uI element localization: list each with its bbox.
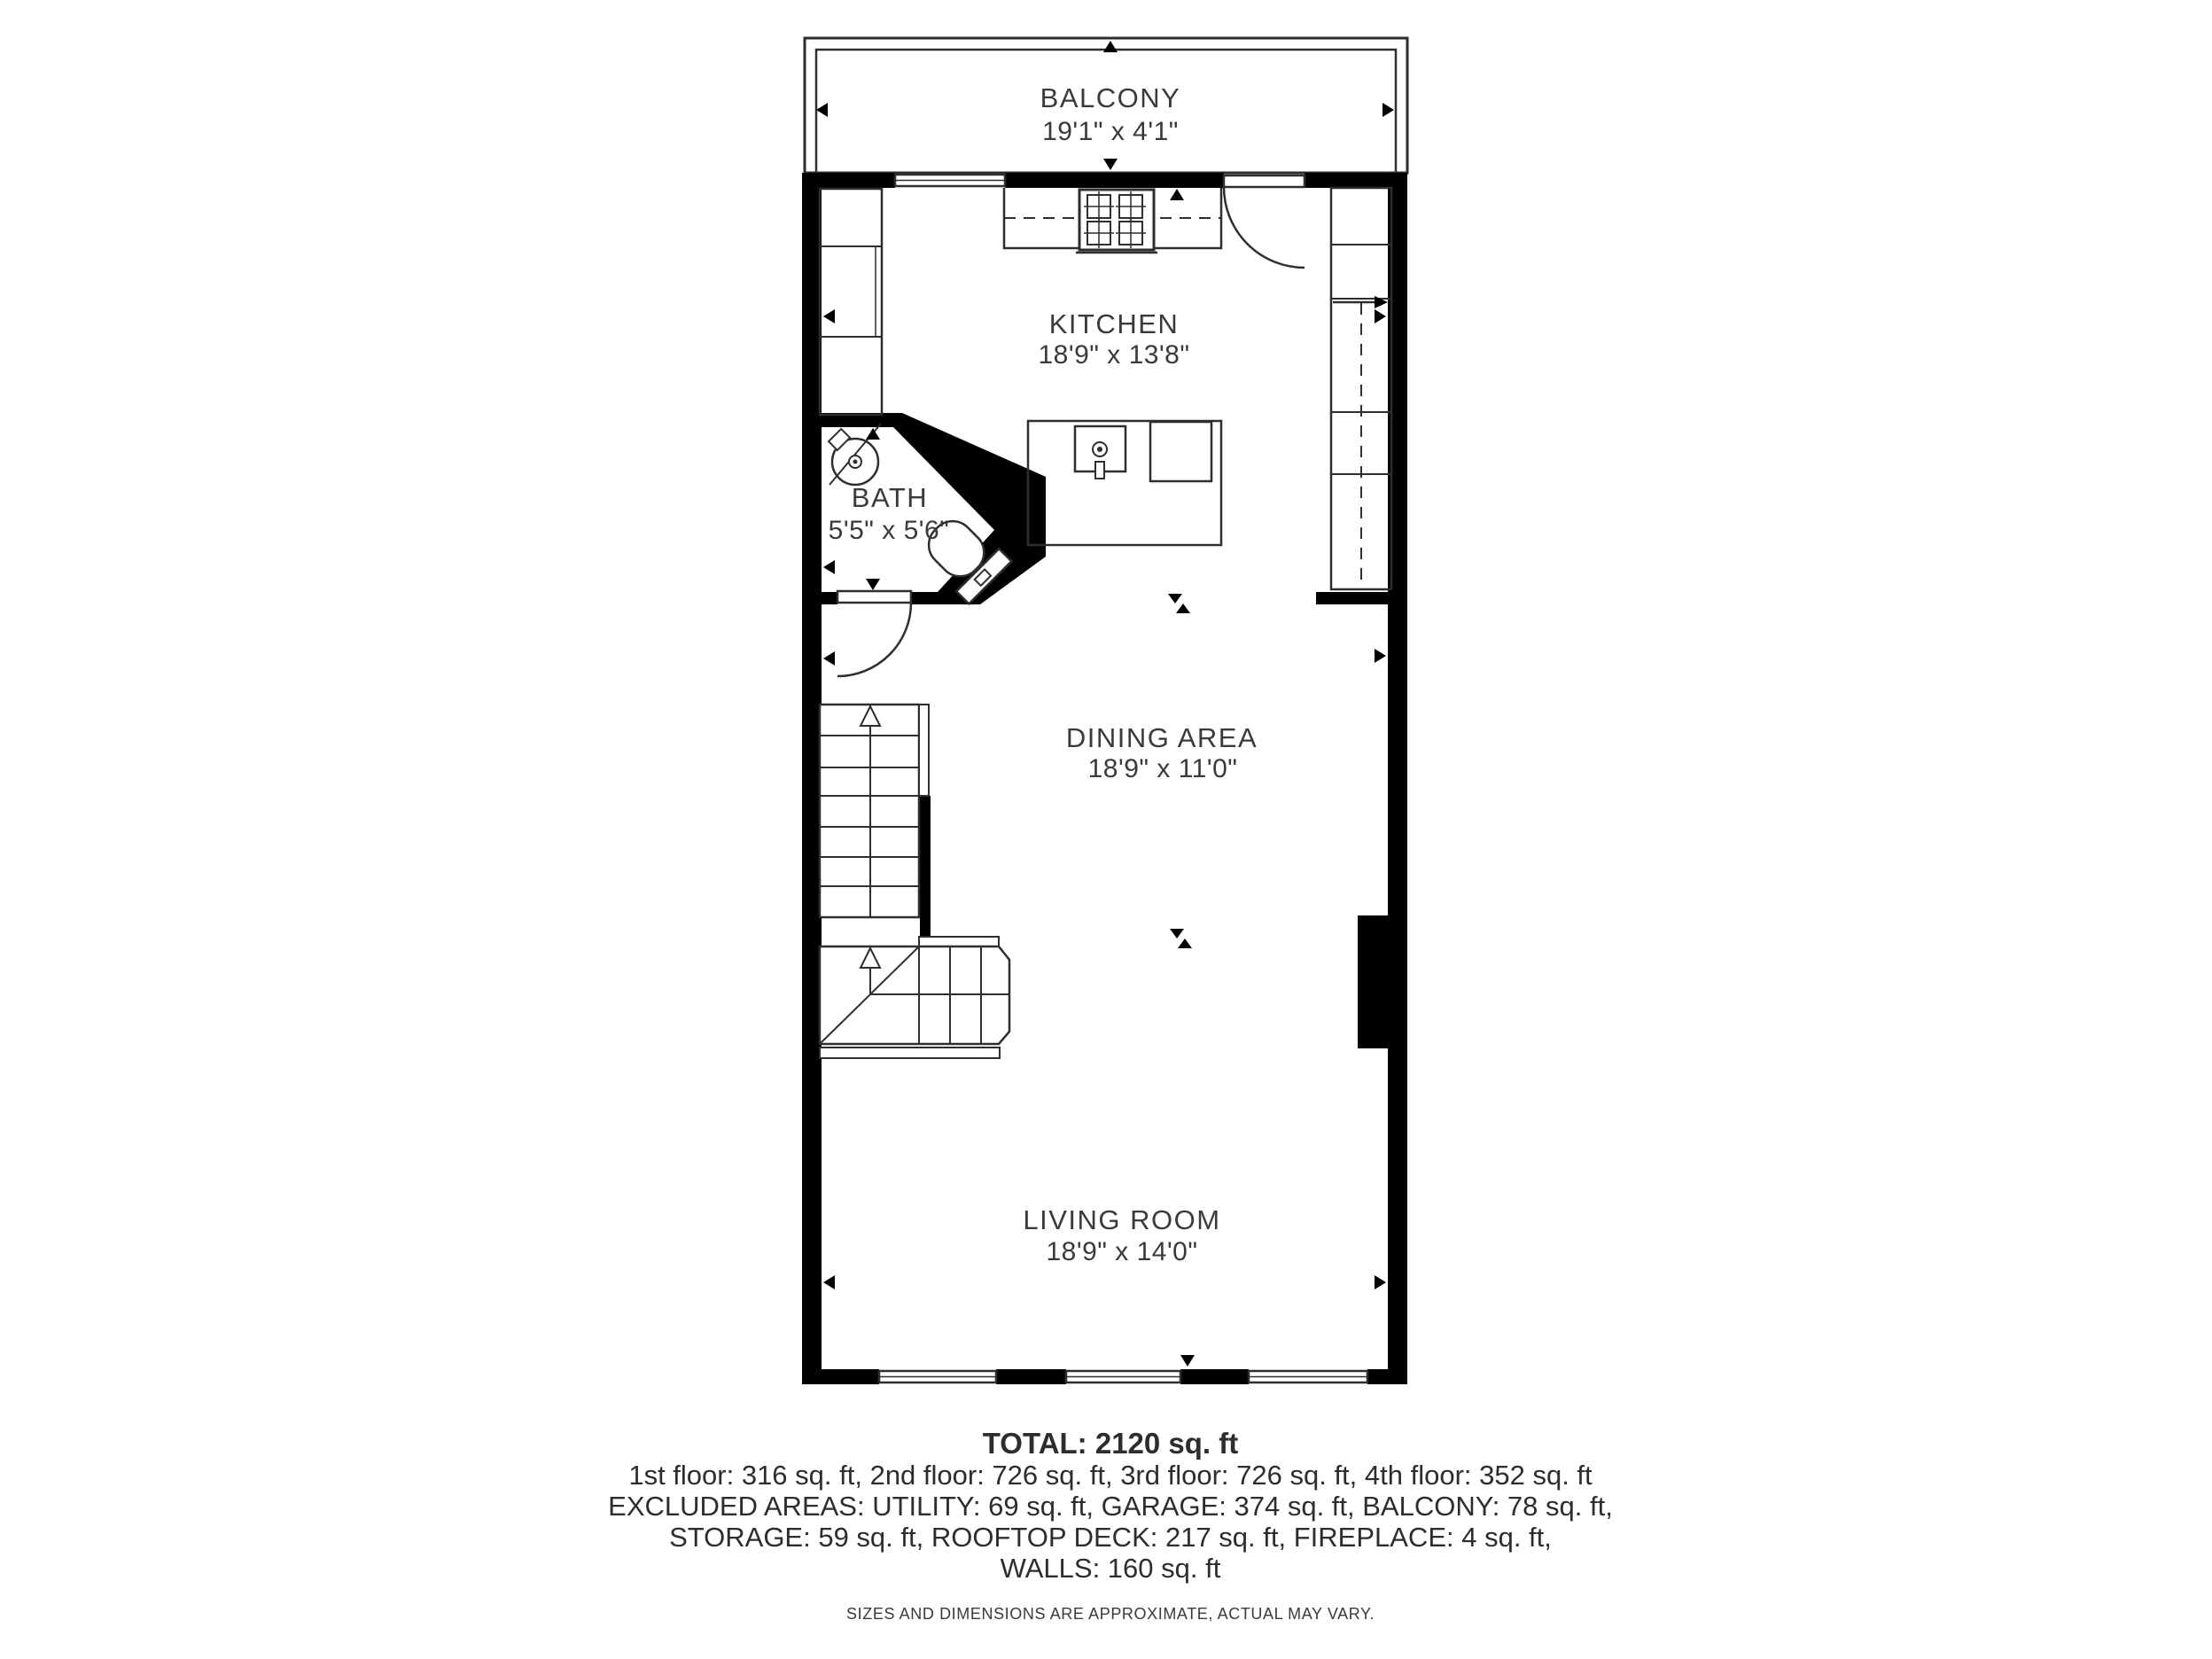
dim-triangle-left-icon xyxy=(823,560,835,574)
room-label-living: LIVING ROOM xyxy=(1023,1204,1220,1235)
dim-triangle-right-icon xyxy=(1382,103,1394,117)
balcony-door-leaf xyxy=(1224,175,1305,187)
excluded-areas-text-1: EXCLUDED AREAS: UTILITY: 69 sq. ft, GARA… xyxy=(608,1491,1613,1522)
kitchen-window xyxy=(895,175,1005,186)
kitchen-island xyxy=(1028,421,1221,545)
room-dims-kitchen: 18'9" x 13'8" xyxy=(1038,340,1189,370)
bath-door-swing-arc xyxy=(837,603,911,676)
top-wall-segment xyxy=(1305,173,1407,188)
dim-triangle-left-icon xyxy=(823,1275,835,1289)
total-area-text: TOTAL: 2120 sq. ft xyxy=(983,1427,1239,1460)
balcony-door-swing-arc xyxy=(1224,187,1305,268)
sink-faucet xyxy=(1095,462,1104,479)
room-dims-balcony: 19'1" x 4'1" xyxy=(1042,117,1179,146)
dim-triangle-down-icon xyxy=(866,579,880,590)
dim-triangle-up-icon xyxy=(1103,41,1118,52)
left-cabinet-run xyxy=(820,189,882,415)
room-labels: BALCONY 19'1" x 4'1" KITCHEN 18'9" x 13'… xyxy=(829,82,1258,1266)
right-cabinet-run xyxy=(1331,188,1391,589)
dim-triangle-up-icon xyxy=(1170,189,1184,200)
living-window xyxy=(1066,1371,1180,1382)
top-wall-segment xyxy=(802,173,895,188)
bottom-wall-segment xyxy=(996,1369,1066,1384)
top-wall-segment xyxy=(1005,173,1224,188)
dim-triangle-right-icon xyxy=(1375,1275,1386,1289)
stair-landing-edge xyxy=(919,937,999,946)
room-dims-bath: 5'5" x 5'6" xyxy=(829,516,950,545)
room-label-bath: BATH xyxy=(852,482,928,513)
bottom-wall-segment xyxy=(1180,1369,1249,1384)
excluded-areas-text-3: WALLS: 160 sq. ft xyxy=(1001,1553,1221,1584)
kitchen-dining-wall-stub xyxy=(1316,592,1407,604)
living-window xyxy=(1249,1371,1367,1382)
bath-door xyxy=(837,589,911,676)
dim-triangle-left-icon xyxy=(816,103,828,117)
fireplace xyxy=(1358,915,1390,1048)
area-summary: TOTAL: 2120 sq. ft 1st floor: 316 sq. ft… xyxy=(608,1427,1613,1623)
room-dims-living: 18'9" x 14'0" xyxy=(1046,1237,1197,1266)
stair-rail xyxy=(919,705,929,796)
floor-plan: BALCONY 19'1" x 4'1" KITCHEN 18'9" x 13'… xyxy=(0,0,2212,1659)
stair-half-wall xyxy=(920,796,931,937)
opening-bowtie-icon xyxy=(1170,929,1192,948)
stairs-lower-flight xyxy=(820,937,1009,1058)
opening-bowtie-icon xyxy=(1168,594,1190,613)
room-label-balcony: BALCONY xyxy=(1040,82,1181,113)
kitchen-sink xyxy=(1075,426,1125,479)
living-window xyxy=(879,1371,996,1382)
stairs-upper-flight xyxy=(820,705,929,917)
dishwasher xyxy=(1150,422,1211,481)
stair-base-edge xyxy=(820,1048,1000,1058)
disclaimer-text: SIZES AND DIMENSIONS ARE APPROXIMATE, AC… xyxy=(846,1605,1375,1623)
dim-triangle-up-icon xyxy=(866,428,880,440)
balcony-door xyxy=(1224,175,1305,268)
dim-triangle-down-icon xyxy=(1180,1355,1195,1367)
dim-triangle-left-icon xyxy=(823,651,835,666)
dim-triangle-down-icon xyxy=(1103,159,1118,170)
bath-door-leaf xyxy=(837,591,911,603)
stove xyxy=(1076,190,1157,253)
floor-areas-text: 1st floor: 316 sq. ft, 2nd floor: 726 sq… xyxy=(628,1460,1593,1491)
room-dims-dining: 18'9" x 11'0" xyxy=(1088,754,1238,783)
excluded-areas-text-2: STORAGE: 59 sq. ft, ROOFTOP DECK: 217 sq… xyxy=(669,1522,1552,1553)
room-label-dining: DINING AREA xyxy=(1066,722,1258,753)
left-wall xyxy=(802,173,822,1384)
dim-triangle-left-icon xyxy=(823,309,835,323)
room-label-kitchen: KITCHEN xyxy=(1049,308,1180,339)
dim-triangle-right-icon xyxy=(1375,649,1386,663)
bottom-wall-segment xyxy=(1367,1369,1407,1384)
bottom-wall-segment xyxy=(802,1369,879,1384)
dim-triangle-right-icon xyxy=(1375,309,1386,323)
